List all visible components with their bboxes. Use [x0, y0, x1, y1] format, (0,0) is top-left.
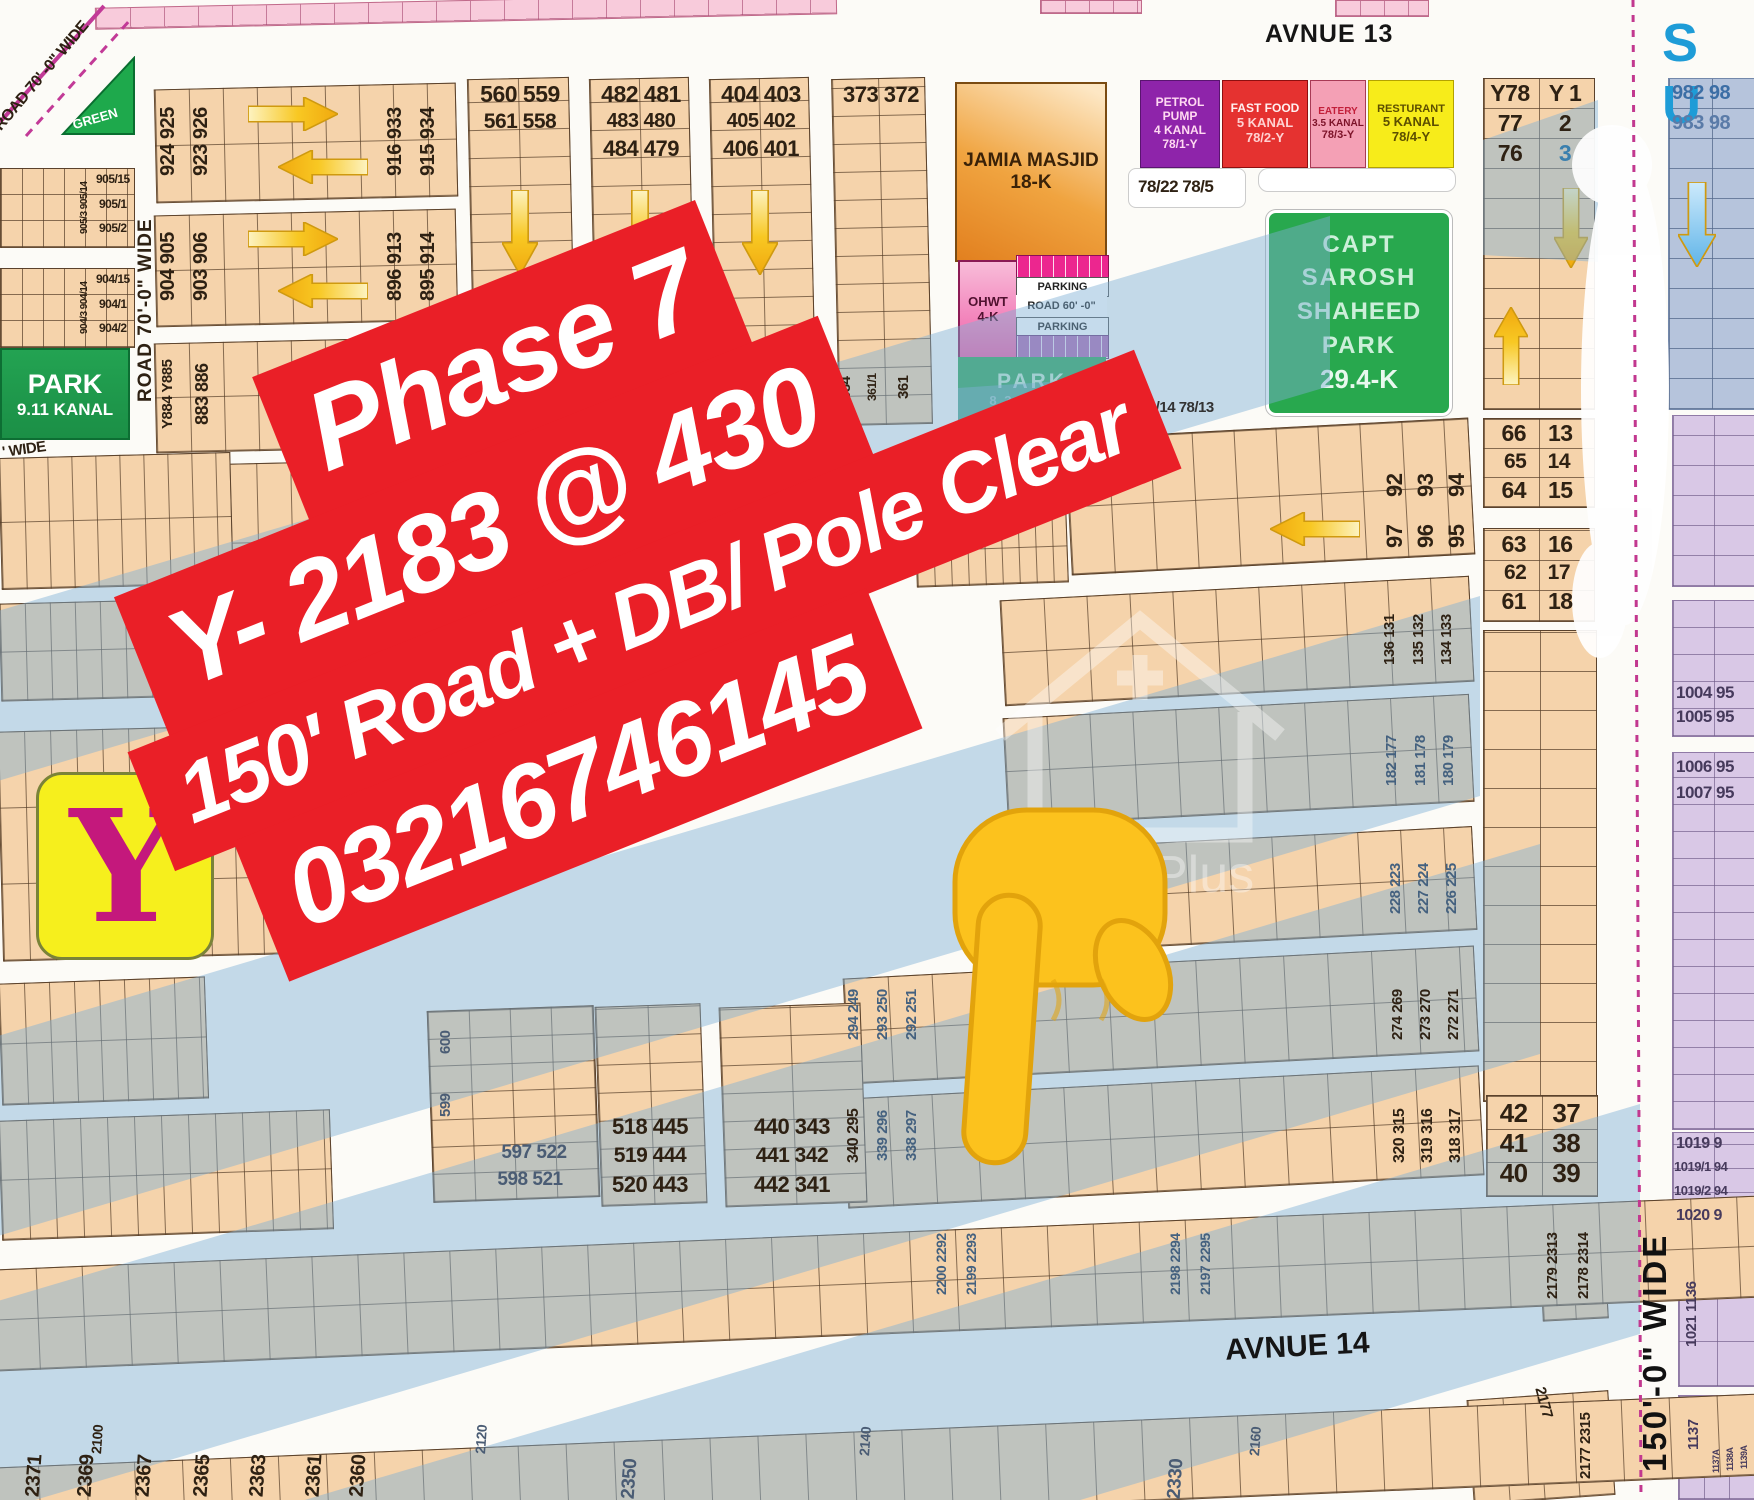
plot-label: 1006 95 — [1676, 758, 1734, 775]
petrol-pump: PETROL PUMP 4 KANAL 78/1-Y — [1140, 80, 1220, 168]
resturant-l3: 78/4-Y — [1392, 130, 1430, 145]
plot-label: 1020 9 — [1676, 1208, 1722, 1224]
plot-label: 272 271 — [1446, 968, 1461, 1062]
plot-label: 76 — [1483, 142, 1537, 165]
plot-label: 2365 — [190, 1451, 213, 1500]
plot-label: 923 926 — [191, 90, 211, 194]
petrol-l4: 78/1-Y — [1162, 138, 1197, 152]
plot-table-1006 — [1672, 752, 1754, 1130]
plot-label: 2330 — [1165, 1457, 1187, 1500]
plot-label: 2360 — [346, 1451, 369, 1500]
plot-label: 2361 — [302, 1451, 325, 1500]
plot-label: 41 38 — [1486, 1130, 1594, 1156]
plot-label: 320 315 — [1392, 1088, 1408, 1184]
plot-label: 903 906 — [191, 216, 211, 318]
fastfood-l2: 5 KANAL — [1237, 116, 1293, 131]
pointing-down-finger-icon — [905, 780, 1175, 1185]
white-rounded-bar — [1258, 168, 1456, 192]
plot-label: 293 250 — [875, 968, 890, 1062]
plot-label: 599 — [438, 1078, 453, 1133]
plot-label: 64 15 — [1483, 479, 1591, 502]
eatery-l3: 78/3-Y — [1322, 129, 1354, 142]
plot-label: 483 480 — [592, 111, 690, 131]
plot-label: 63 16 — [1483, 533, 1591, 556]
plot-label: 905/1 — [99, 198, 127, 210]
plot-label: 2350 — [619, 1457, 641, 1500]
capt-l3: SHAHEED — [1297, 298, 1421, 326]
plot-label: 2100 — [89, 1418, 106, 1461]
plot-label: 983 98 — [1672, 113, 1730, 133]
capt-size: 29.4-K — [1320, 365, 1398, 395]
plot-label: 2179 2313 — [1545, 1216, 1560, 1316]
plot-label: 441 342 — [722, 1145, 862, 1166]
plot-label: 94 — [1446, 462, 1468, 508]
plot-label: 92 — [1384, 462, 1406, 508]
plot-label: 519 444 — [598, 1145, 702, 1166]
plot-label: 77 — [1483, 112, 1537, 135]
plot-label: 982 98 — [1672, 83, 1730, 103]
plot-label: 2 — [1538, 112, 1592, 135]
park-911-name: PARK — [28, 369, 103, 400]
plot-label: 1019/1 94 — [1674, 1160, 1727, 1173]
plot-label: Y 1 — [1538, 82, 1592, 105]
plot-label: Y78 — [1483, 82, 1537, 105]
plot-table-lav1 — [1672, 415, 1754, 587]
plot-label: 1137 — [1686, 1400, 1701, 1470]
plot-label: 1005 95 — [1676, 708, 1734, 725]
plot-band — [0, 1109, 334, 1241]
petrol-l3: 4 KANAL — [1154, 124, 1206, 138]
plot-label: 294 249 — [846, 968, 861, 1062]
plot-label: 597 522 — [482, 1143, 586, 1162]
plot-label: 905/3 905/14 — [80, 170, 90, 246]
plot-label: 3 — [1538, 142, 1592, 165]
plot-label: 66 13 — [1483, 422, 1591, 445]
plot-label: 915 934 — [418, 90, 438, 194]
road-70-vert-label: ROAD 70'-0" WIDE — [136, 180, 155, 440]
plot-label: 182 177 — [1384, 714, 1399, 808]
plot-table-right — [1483, 630, 1597, 1102]
fastfood-l3: 78/2-Y — [1246, 131, 1284, 146]
fast-food: FAST FOOD 5 KANAL 78/2-Y — [1222, 80, 1308, 168]
plot-label: 2120 — [473, 1418, 490, 1461]
plot-label: 484 479 — [592, 138, 690, 160]
plot-label: 600 — [438, 1015, 453, 1070]
plot-label: 904/3 904/14 — [80, 270, 90, 346]
plot-label: 442 341 — [722, 1174, 862, 1196]
plot-label: 1137A — [1712, 1428, 1721, 1494]
plot-label: 319 316 — [1420, 1088, 1436, 1184]
plot-label: 2177 2315 — [1578, 1398, 1593, 1493]
plot-label: 42 37 — [1486, 1100, 1594, 1126]
plot-label: 916 933 — [385, 90, 405, 194]
plot-label: 924 925 — [158, 90, 178, 194]
capt-l1: CAPT — [1322, 231, 1395, 259]
plot-label: 2199 2293 — [964, 1222, 978, 1306]
plot-label: 2140 — [857, 1420, 874, 1463]
plot-label: 560 559 — [470, 83, 570, 106]
plot-label: 518 445 — [598, 1116, 702, 1138]
plot-label: 226 225 — [1444, 843, 1459, 935]
plot-label: 95 — [1446, 512, 1468, 560]
plot-label: 93 — [1415, 462, 1437, 508]
plot-label: 2178 2314 — [1576, 1216, 1591, 1316]
petrol-l1: PETROL — [1156, 96, 1205, 110]
plot-label: 1019/2 94 — [1674, 1184, 1727, 1197]
avenue-13-label: AVNUE 13 — [1265, 20, 1393, 49]
top-pink-strip — [95, 0, 837, 30]
plot-label: 2198 2294 — [1168, 1222, 1182, 1306]
plot-label: 404 403 — [712, 83, 810, 106]
plot-label: 97 — [1384, 512, 1406, 560]
capt-l2: SAROSH — [1302, 264, 1417, 292]
plot-label: 2363 — [246, 1451, 269, 1500]
plot-label: 904/2 — [99, 322, 127, 334]
plot-label: 78/22 78/5 — [1138, 178, 1213, 195]
plot-label: 1139A — [1740, 1424, 1749, 1490]
plot-label: 1021 1136 — [1684, 1258, 1699, 1370]
plot-label: 135 132 — [1411, 594, 1426, 686]
plot-label: 61 18 — [1483, 590, 1591, 613]
plot-label: 905/2 — [99, 222, 127, 234]
plot-label: 1019 9 — [1676, 1136, 1722, 1152]
plot-label: 482 481 — [592, 83, 690, 106]
plot-label: 273 270 — [1418, 968, 1433, 1062]
plot-label: 227 224 — [1416, 843, 1431, 935]
green-marker: GREEN — [58, 56, 138, 136]
resturant-l2: 5 KANAL — [1383, 115, 1439, 130]
plot-label: 440 343 — [722, 1116, 862, 1138]
plot-label: 181 178 — [1413, 714, 1428, 808]
park-911-size: 9.11 KANAL — [17, 400, 113, 420]
plot-label: 2371 — [22, 1451, 45, 1500]
capt-sarosh-park: CAPT SAROSH SHAHEED PARK 29.4-K — [1266, 210, 1452, 416]
resturant: RESTURANT 5 KANAL 78/4-Y — [1368, 80, 1454, 168]
plot-label: 339 296 — [875, 1088, 890, 1184]
plot-label: 2197 2295 — [1198, 1222, 1212, 1306]
plot-label: 134 133 — [1439, 594, 1454, 686]
plot-label: 905/15 — [96, 173, 130, 185]
top-pink-strip-2 — [1040, 0, 1142, 14]
plot-label: 1004 95 — [1676, 684, 1734, 701]
plot-label: 405 402 — [712, 111, 810, 131]
plot-label: 1138A — [1726, 1426, 1735, 1492]
plot-label: 904/1 — [99, 298, 127, 310]
plot-map: GREEN PARK 9.11 KANAL ' WIDE JAMIA MASJI… — [0, 0, 1754, 1500]
petrol-l2: PUMP — [1163, 110, 1198, 124]
plot-label: 520 443 — [598, 1174, 702, 1196]
plot-label: 598 521 — [478, 1170, 582, 1189]
plot-label: 2367 — [132, 1451, 155, 1500]
avenue-14-label: AVNUE 14 — [1224, 1326, 1370, 1368]
plot-label: 136 131 — [1382, 594, 1397, 686]
plot-label: 62 17 — [1483, 562, 1591, 583]
plot-label: 373 372 — [835, 84, 927, 106]
plot-label: 896 913 — [385, 216, 405, 318]
plot-label: 406 401 — [712, 138, 810, 160]
plot-label: 2200 2292 — [934, 1222, 948, 1306]
park-911: PARK 9.11 KANAL — [0, 348, 130, 440]
plot-label: 904/15 — [96, 273, 130, 285]
plot-label: 228 223 — [1388, 843, 1403, 935]
plot-label: 40 39 — [1486, 1160, 1594, 1186]
plot-label: 318 317 — [1448, 1088, 1464, 1184]
capt-l4: PARK — [1322, 332, 1396, 360]
road-150-wide-label: 150'-0" WIDE — [1638, 1205, 1671, 1500]
eatery-l2: 3.5 KANAL — [1312, 118, 1364, 130]
plot-label: 180 179 — [1441, 714, 1456, 808]
plot-label: 2160 — [1247, 1420, 1264, 1463]
plot-band — [0, 976, 209, 1105]
plot-label: 274 269 — [1390, 968, 1405, 1062]
top-pink-strip-3 — [1335, 0, 1429, 17]
plot-label: 1007 95 — [1676, 784, 1734, 801]
plot-label: 904 905 — [158, 216, 178, 318]
fastfood-l1: FAST FOOD — [1231, 102, 1300, 116]
eatery: EATERY 3.5 KANAL 78/3-Y — [1310, 80, 1366, 168]
eatery-l1: EATERY — [1318, 106, 1357, 118]
plot-label: 561 558 — [470, 111, 570, 132]
plot-label: 65 14 — [1483, 451, 1591, 472]
plot-label: 96 — [1415, 512, 1437, 560]
